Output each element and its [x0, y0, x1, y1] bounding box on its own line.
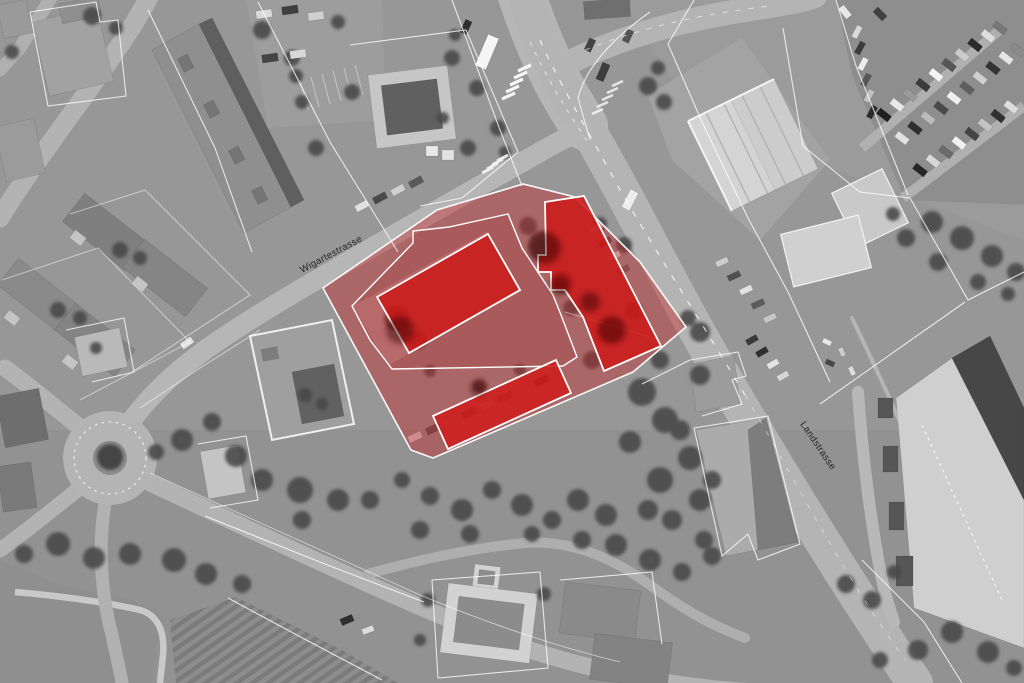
aerial-map: Wigartestrasse Landstrasse	[0, 0, 1024, 683]
building-topcenter-square	[368, 65, 456, 148]
roundabout	[63, 411, 157, 505]
building-sw-dark2	[0, 462, 37, 512]
building-top-edge	[583, 0, 630, 20]
aerial-photo: Wigartestrasse Landstrasse	[0, 0, 1024, 683]
building-bottom-gray1	[559, 582, 641, 643]
